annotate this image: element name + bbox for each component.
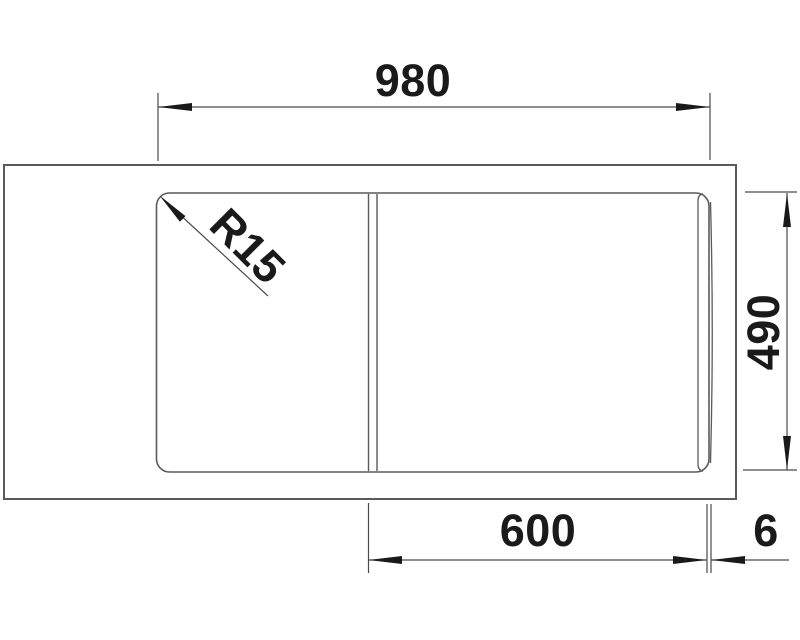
dim-980-label: 980 xyxy=(375,55,452,106)
dim-600-arrow-right-icon xyxy=(673,556,707,564)
dim-490-arrow-top-icon xyxy=(783,193,791,227)
dim-490-arrow-bottom-icon xyxy=(783,436,791,470)
radius-label: R15 xyxy=(200,198,296,294)
radius-arrow-icon xyxy=(160,196,186,222)
right-edge-bow xyxy=(711,202,713,463)
technical-drawing-canvas: 980 490 600 6 R15 xyxy=(0,0,800,640)
bowl-inner-edge xyxy=(698,194,703,471)
dim-6-label: 6 xyxy=(753,505,779,556)
dim-6-arrow-left-icon xyxy=(711,556,745,564)
dim-980-arrow-right-icon xyxy=(676,103,710,111)
worktop-outline xyxy=(4,165,736,499)
dim-600-arrow-left-icon xyxy=(369,556,403,564)
dim-980-arrow-left-icon xyxy=(158,103,192,111)
dim-600-label: 600 xyxy=(500,505,577,556)
sink-dimension-drawing: 980 490 600 6 R15 xyxy=(0,0,800,640)
dim-490-label: 490 xyxy=(738,294,789,371)
